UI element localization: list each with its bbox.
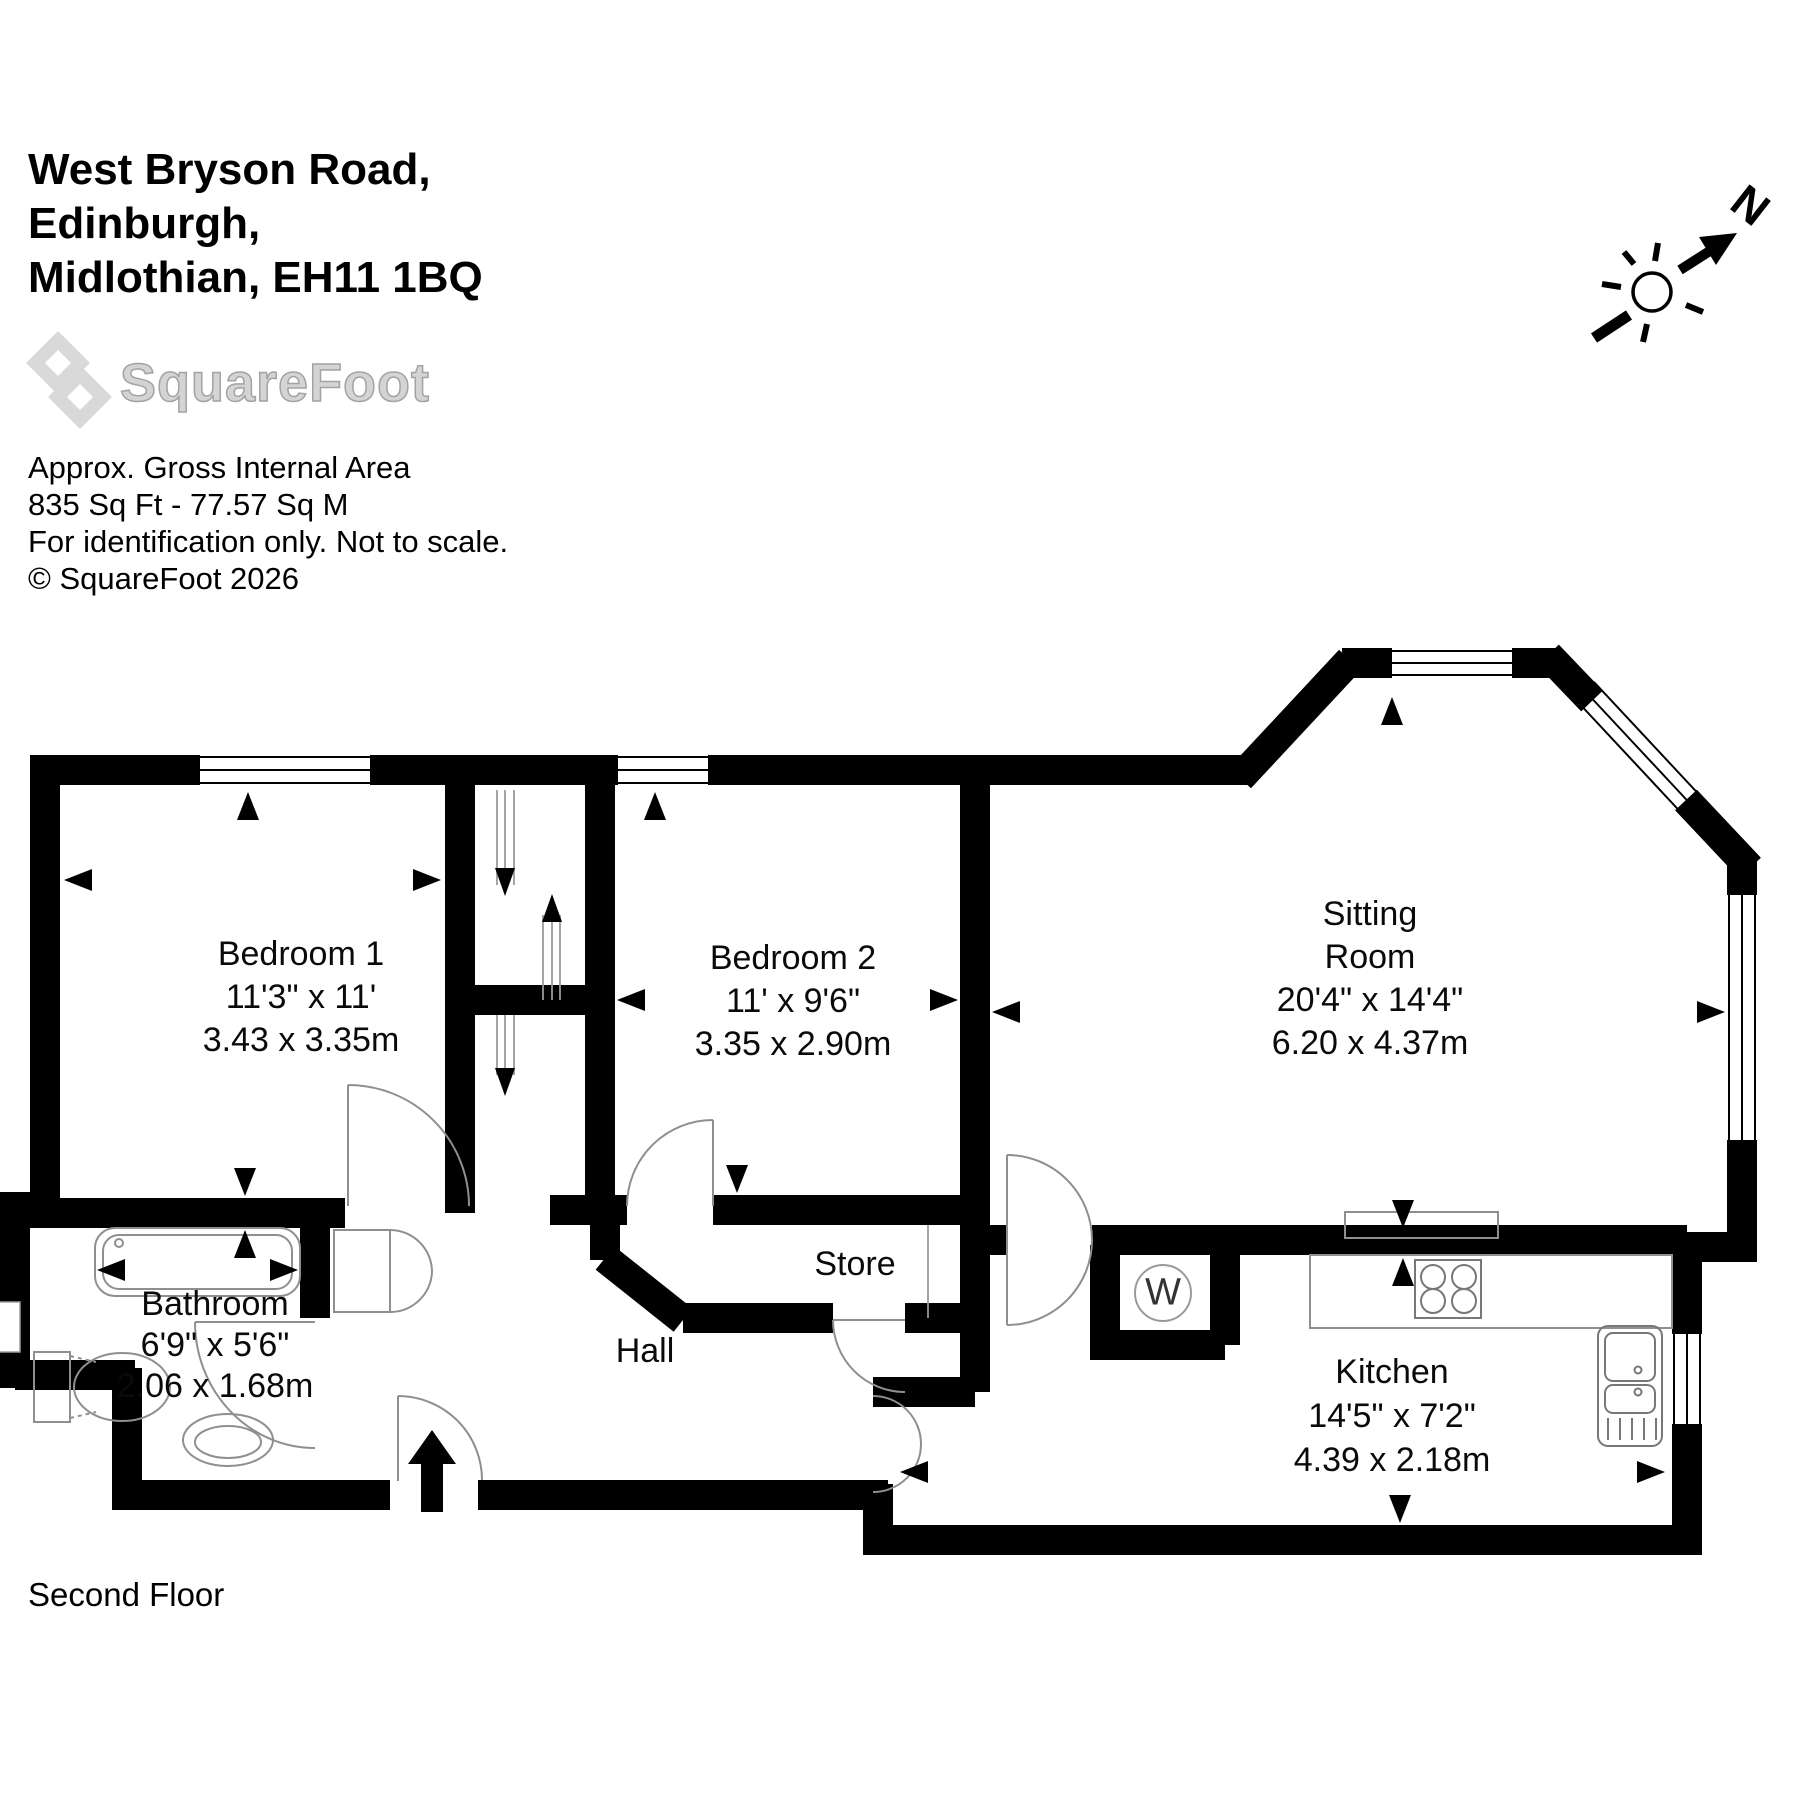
stair-arrow-up-head (542, 894, 562, 922)
compass-sun-ray-long (1594, 315, 1629, 338)
arrow-sitting-right (1697, 1001, 1725, 1023)
basin-inner (195, 1426, 261, 1458)
copyright: © SquareFoot 2026 (28, 560, 508, 597)
entry-arrow-head (408, 1430, 456, 1464)
label-kitchen: Kitchen 14'5" x 7'2" 4.39 x 2.18m (1294, 1350, 1491, 1482)
window-bedroom1 (200, 757, 370, 783)
arrow-bed1-right (413, 869, 441, 891)
arrow-bed2-top (644, 792, 666, 820)
bedroom2-dims-metric: 3.35 x 2.90m (695, 1023, 892, 1066)
kitchen-dims-imperial: 14'5" x 7'2" (1294, 1394, 1491, 1438)
kitchen-name: Kitchen (1294, 1350, 1491, 1394)
squarefoot-logo-icon (26, 331, 112, 429)
window-kitchen (1674, 1334, 1700, 1424)
sink-drain-2 (1635, 1389, 1642, 1396)
arrow-bed1-top (237, 792, 259, 820)
hob-ring-4 (1452, 1289, 1476, 1313)
entry-arrow (408, 1430, 456, 1512)
arrow-kitchen-top (1392, 1258, 1414, 1286)
sitting-room-name-2: Room (1272, 936, 1469, 979)
window-sitting-right (1729, 895, 1755, 1140)
arrow-bath-right (270, 1259, 298, 1281)
sink-bowl-1 (1605, 1333, 1655, 1381)
hob-ring-1 (1421, 1265, 1445, 1289)
arrow-bed1-left (64, 869, 92, 891)
label-store: Store (814, 1243, 895, 1286)
floor-label: Second Floor (28, 1576, 224, 1614)
hall-name: Hall (616, 1330, 675, 1373)
bedroom1-dims-metric: 3.43 x 3.35m (203, 1019, 400, 1062)
area-note: For identification only. Not to scale. (28, 523, 508, 560)
sink-drainer-lines (1608, 1418, 1656, 1440)
arrow-bed2-right (930, 989, 958, 1011)
arrow-kitchen-right (1637, 1461, 1665, 1483)
floorplan-page: West Bryson Road, Edinburgh, Midlothian,… (0, 0, 1800, 1800)
stair-arrow-down-head (495, 868, 515, 896)
area-title: Approx. Gross Internal Area (28, 449, 508, 486)
bath-tap-icon (115, 1239, 123, 1247)
bedroom2-dims-imperial: 11' x 9'6" (695, 980, 892, 1023)
label-bedroom2: Bedroom 2 11' x 9'6" 3.35 x 2.90m (695, 937, 892, 1066)
door-kitchen-bifold (873, 1396, 921, 1492)
bathroom-name: Bathroom (117, 1284, 314, 1325)
squarefoot-logo-text: SquareFoot (120, 352, 430, 414)
door-cupboard-bifold (390, 1230, 432, 1312)
wall-notch (0, 1302, 20, 1352)
arrow-sitting-top (1381, 697, 1403, 725)
window-bay-diagonal (1576, 682, 1706, 820)
label-bathroom: Bathroom 6'9" x 5'6" 2.06 x 1.68m (117, 1284, 314, 1407)
bathroom-dims-imperial: 6'9" x 5'6" (117, 1325, 314, 1366)
sitting-room-dims-imperial: 20'4" x 14'4" (1272, 979, 1469, 1022)
area-value: 835 Sq Ft - 77.57 Sq M (28, 486, 508, 523)
sitting-room-dims-metric: 6.20 x 4.37m (1272, 1022, 1469, 1065)
window-bedroom2 (618, 757, 708, 783)
kitchen-counter (1310, 1255, 1672, 1328)
wall-store (605, 1210, 975, 1320)
bedroom2-name: Bedroom 2 (695, 937, 892, 980)
sitting-room-name-1: Sitting (1272, 893, 1469, 936)
walls (15, 655, 1757, 1555)
stair-arrow-down2-head (495, 1068, 515, 1096)
label-bedroom1: Bedroom 1 11'3" x 11' 3.43 x 3.35m (203, 933, 400, 1062)
info-block: Approx. Gross Internal Area 835 Sq Ft - … (28, 449, 508, 597)
entry-arrow-shaft (421, 1462, 443, 1512)
sink-drain-1 (1635, 1367, 1642, 1374)
hob-ring-2 (1452, 1265, 1476, 1289)
label-hall: Hall (616, 1330, 675, 1373)
window-bay-top (1392, 651, 1512, 675)
cupboard-box (334, 1230, 390, 1312)
door-sitting-upper (1007, 1155, 1092, 1240)
bath-inner (103, 1235, 292, 1289)
washing-machine-label: W (1145, 1272, 1181, 1315)
arrow-bed2-left (617, 989, 645, 1011)
arrow-kitchen-bottom (1389, 1495, 1411, 1523)
door-bedroom2 (627, 1120, 713, 1206)
door-sitting-lower (1007, 1240, 1092, 1325)
north-compass (1594, 233, 1737, 342)
hob-ring-3 (1421, 1289, 1445, 1313)
kitchen-dims-metric: 4.39 x 2.18m (1294, 1438, 1491, 1482)
bathroom-dims-metric: 2.06 x 1.68m (117, 1366, 314, 1407)
label-sitting-room: Sitting Room 20'4" x 14'4" 6.20 x 4.37m (1272, 893, 1469, 1065)
sink-bowl-2 (1605, 1385, 1655, 1413)
plan-canvas (0, 0, 1800, 1800)
wall-bay-right-diagonal (1548, 655, 1750, 868)
arrow-bed1-bottom (234, 1168, 256, 1196)
wall-bay-left-diagonal (1240, 660, 1350, 778)
compass-sun-circle (1633, 273, 1671, 311)
arrow-bed2-bottom (726, 1165, 748, 1193)
arrow-sitting-bottom (1392, 1200, 1414, 1228)
arrow-bath-left (97, 1259, 125, 1281)
bedroom1-name: Bedroom 1 (203, 933, 400, 976)
arrow-sitting-left (992, 1001, 1020, 1023)
bedroom1-dims-imperial: 11'3" x 11' (203, 976, 400, 1019)
store-name: Store (814, 1243, 895, 1286)
